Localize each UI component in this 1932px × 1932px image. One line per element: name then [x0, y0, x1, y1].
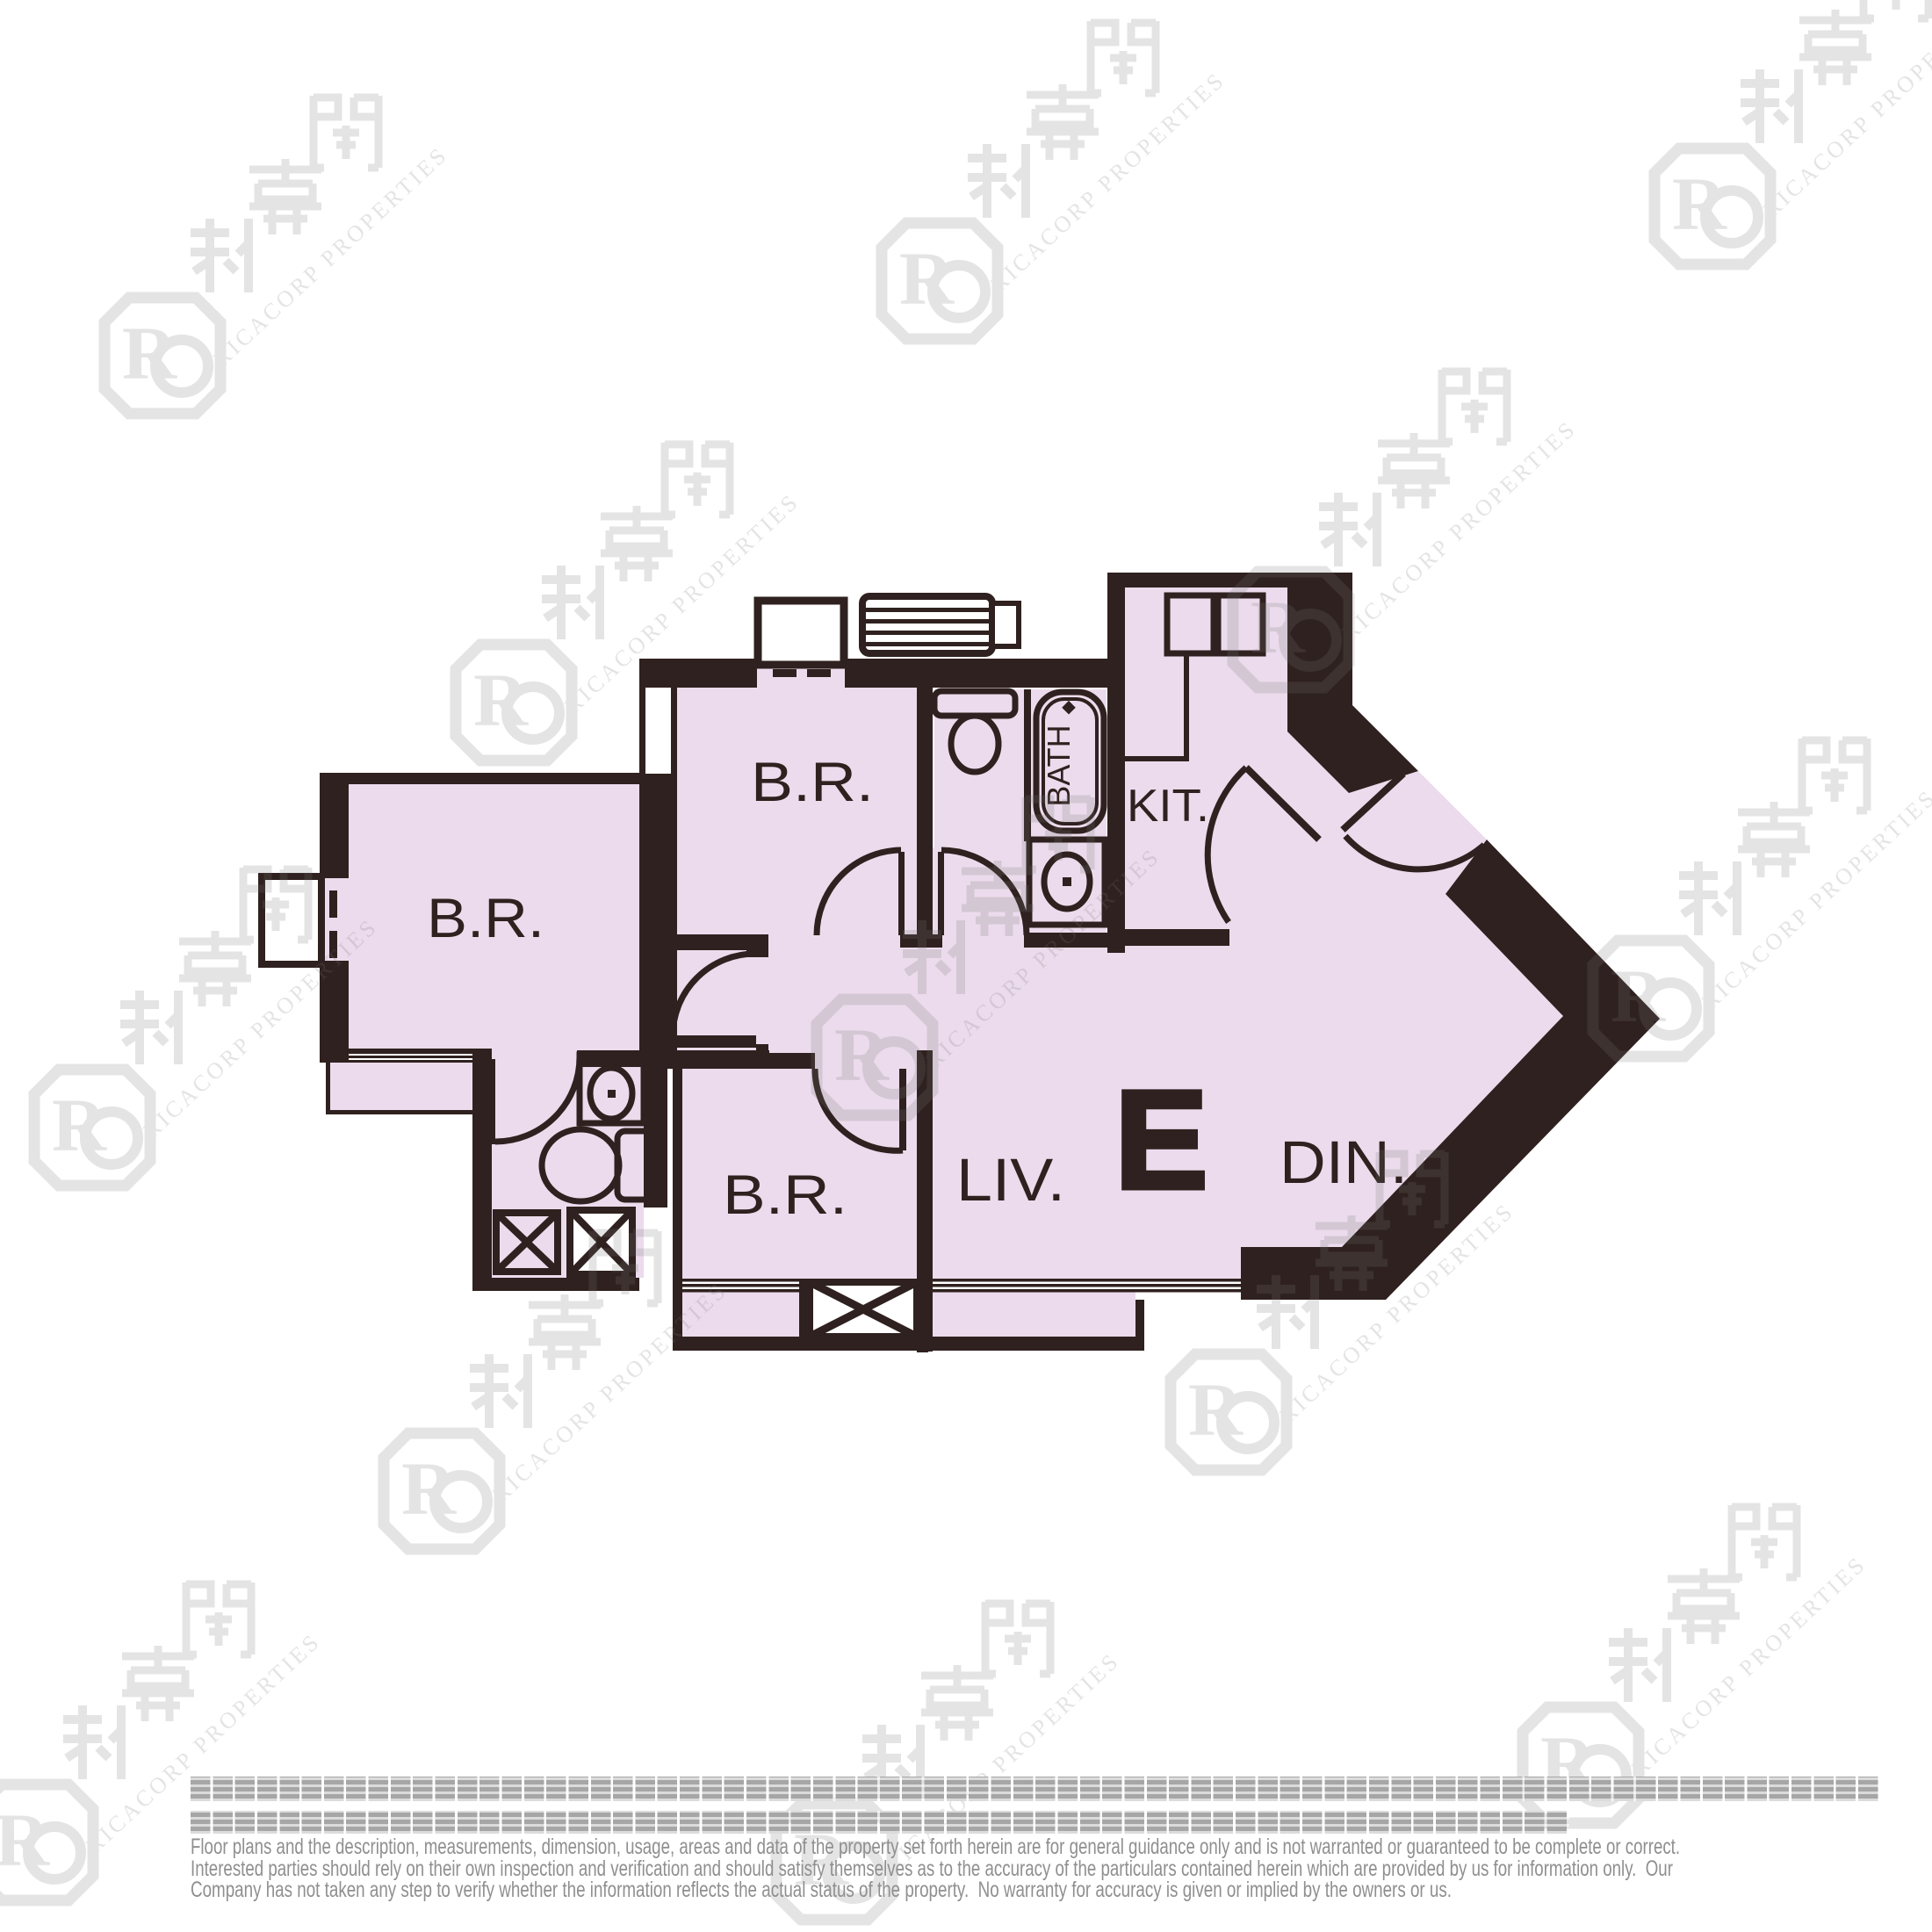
svg-text:LIV.: LIV. — [956, 1146, 1065, 1214]
svg-text:KIT.: KIT. — [1127, 781, 1209, 832]
svg-text:B.R.: B.R. — [751, 752, 874, 813]
svg-text:DIN.: DIN. — [1280, 1128, 1408, 1196]
svg-text:E: E — [1114, 1061, 1208, 1218]
svg-text:B.R.: B.R. — [427, 888, 544, 949]
svg-text:B.R.: B.R. — [723, 1164, 847, 1226]
svg-text:BATH: BATH — [1041, 724, 1077, 806]
